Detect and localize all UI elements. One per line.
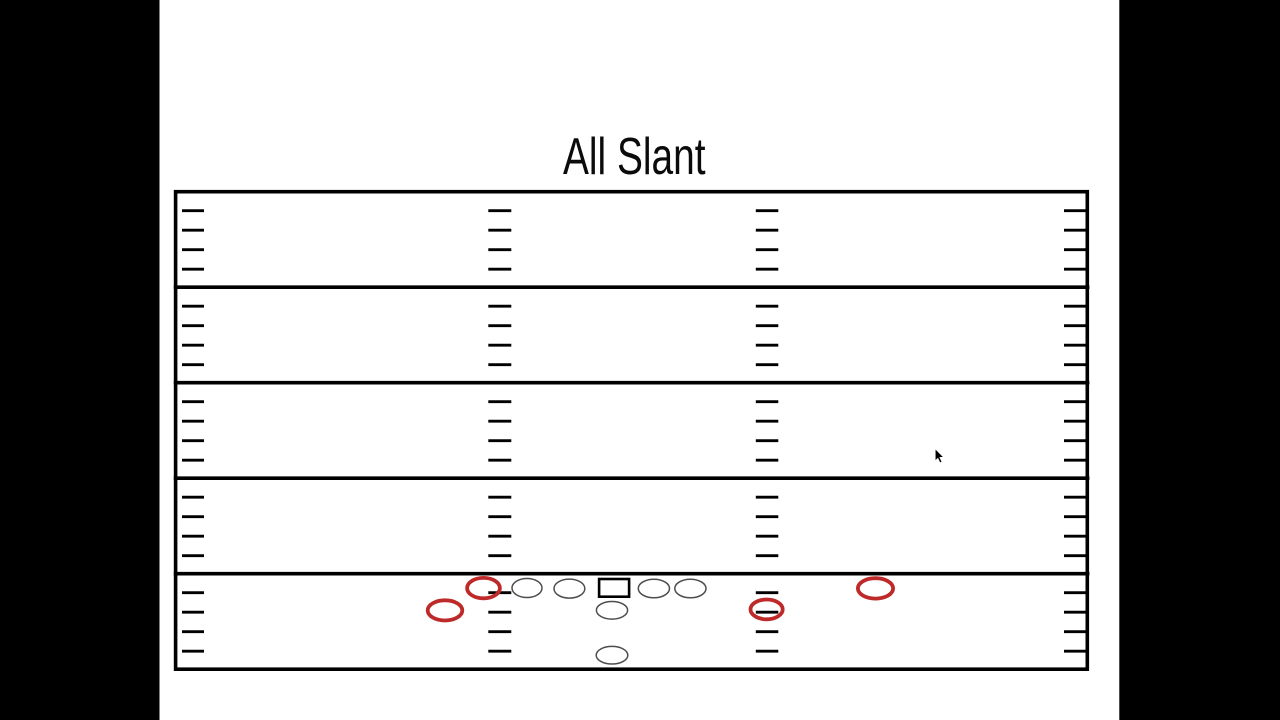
svg-text:All Slant: All Slant <box>563 127 706 185</box>
